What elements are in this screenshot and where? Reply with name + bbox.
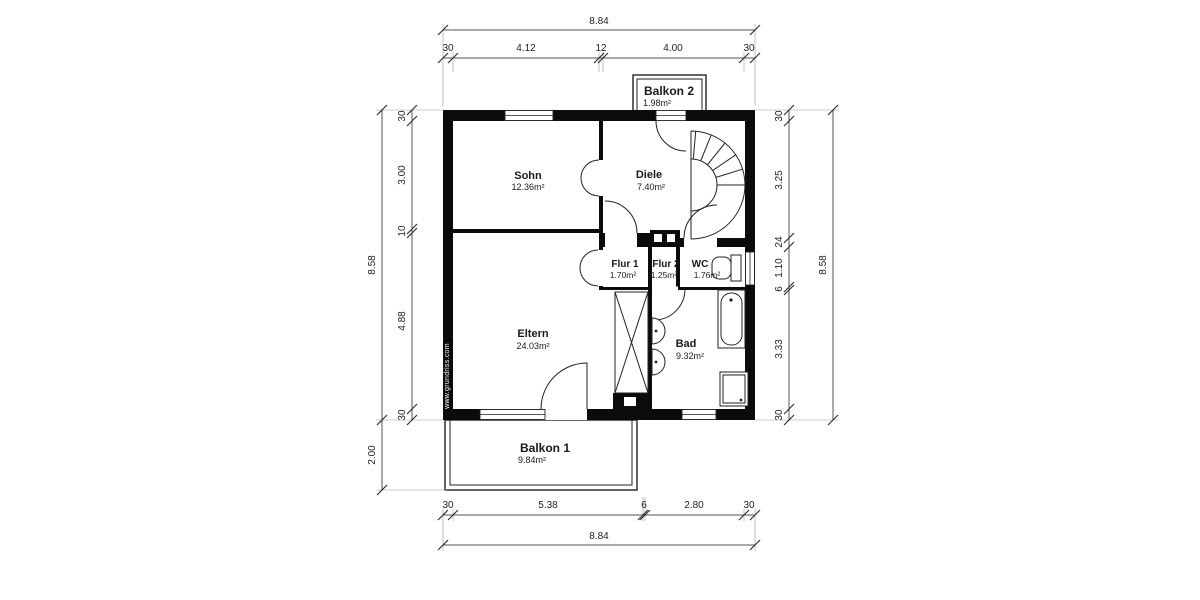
door-arc-flur2	[684, 205, 717, 238]
dim-label: 8.58	[818, 255, 829, 275]
wall-sohn-eltern	[443, 229, 603, 233]
dim-label: 5.38	[538, 500, 558, 511]
room-label-diele: Diele	[636, 169, 662, 181]
dim-label: 24	[774, 236, 785, 248]
room-label-wc: WC	[692, 259, 709, 270]
dim-label: 6	[774, 286, 785, 292]
dim-label: 8.58	[367, 255, 378, 275]
door-arc-balcony1	[541, 363, 587, 409]
window-balcony2-door	[656, 111, 686, 121]
window-sohn	[505, 111, 553, 121]
dim-top-total: 8.84	[438, 16, 760, 35]
sink-1	[652, 318, 665, 344]
dim-left-total: 8.58 2.00	[367, 105, 387, 495]
watermark-text: www.grundriss.com	[444, 343, 451, 410]
room-area-balkon1: 9.84m²	[518, 455, 546, 465]
dim-label: 30	[774, 110, 785, 122]
dim-label: 2.00	[367, 445, 378, 465]
bathtub	[718, 290, 745, 348]
door-arc-balcony2	[656, 121, 686, 151]
room-area-balkon2: 1.98m²	[643, 98, 671, 108]
dim-left-chain: 30 3.00 10 4.88 30	[397, 105, 417, 425]
window-bad	[682, 410, 716, 420]
window-wc	[746, 252, 755, 285]
floor-plan-page: 8.84 30 4.12 12 4.00 30 30 5.38 6 2.80 3…	[0, 0, 1200, 600]
dim-label: 30	[442, 43, 454, 54]
room-area-flur2: 1.25m²	[651, 270, 678, 280]
room-label-bad: Bad	[676, 338, 697, 350]
dim-label: 4.88	[397, 311, 408, 331]
room-area-sohn: 12.36m²	[511, 182, 544, 192]
floor-plan-drawing: 8.84 30 4.12 12 4.00 30 30 5.38 6 2.80 3…	[0, 0, 1200, 600]
dim-right-total: 8.58	[818, 105, 838, 425]
room-area-diele: 7.40m²	[637, 182, 665, 192]
room-area-eltern: 24.03m²	[516, 341, 549, 351]
dim-label: 8.84	[589, 531, 609, 542]
dim-label: 2.80	[684, 500, 704, 511]
dim-label: 30	[774, 409, 785, 421]
room-area-flur1: 1.70m²	[610, 270, 637, 280]
room-label-balkon1: Balkon 1	[520, 441, 570, 455]
dim-label: 30	[397, 409, 408, 421]
wall-eltern-bad	[648, 290, 652, 409]
shower	[720, 372, 748, 406]
spiral-staircase	[691, 131, 745, 239]
dim-label: 8.84	[589, 16, 609, 27]
room-label-flur1: Flur 1	[611, 259, 639, 270]
dim-label: 1.10	[774, 258, 785, 278]
room-area-bad: 9.32m²	[676, 351, 704, 361]
dim-label: 4.12	[516, 43, 536, 54]
dim-bottom-chain: 30 5.38 6 2.80 30	[438, 500, 760, 520]
dim-label: 30	[442, 500, 454, 511]
room-area-wc: 1.76m²	[694, 270, 721, 280]
dim-bottom-total: 8.84	[438, 531, 760, 550]
door-arc-bad	[654, 289, 685, 320]
door-arc-sohn	[581, 160, 599, 196]
dim-right-chain: 30 3.25 24 1.10 6 3.33 30	[774, 105, 794, 425]
room-label-eltern: Eltern	[517, 328, 548, 340]
dim-label: 3.33	[774, 339, 785, 359]
dim-label: 3.00	[397, 165, 408, 185]
sink-2	[652, 349, 665, 375]
room-label-balkon2: Balkon 2	[644, 84, 694, 98]
dim-label: 12	[595, 43, 607, 54]
door-arc-eltern	[580, 250, 598, 286]
dim-label: 6	[641, 500, 647, 511]
dim-label: 4.00	[663, 43, 683, 54]
closet-shaft	[615, 292, 648, 393]
dim-label: 3.25	[774, 170, 785, 190]
room-label-sohn: Sohn	[514, 170, 542, 182]
dim-label: 30	[743, 43, 755, 54]
dim-label: 10	[397, 225, 408, 237]
dim-label: 30	[397, 110, 408, 122]
room-label-flur2: Flur 2	[652, 259, 680, 270]
dim-label: 30	[743, 500, 755, 511]
window-eltern	[480, 410, 545, 420]
door-arc-flur1	[605, 201, 637, 233]
